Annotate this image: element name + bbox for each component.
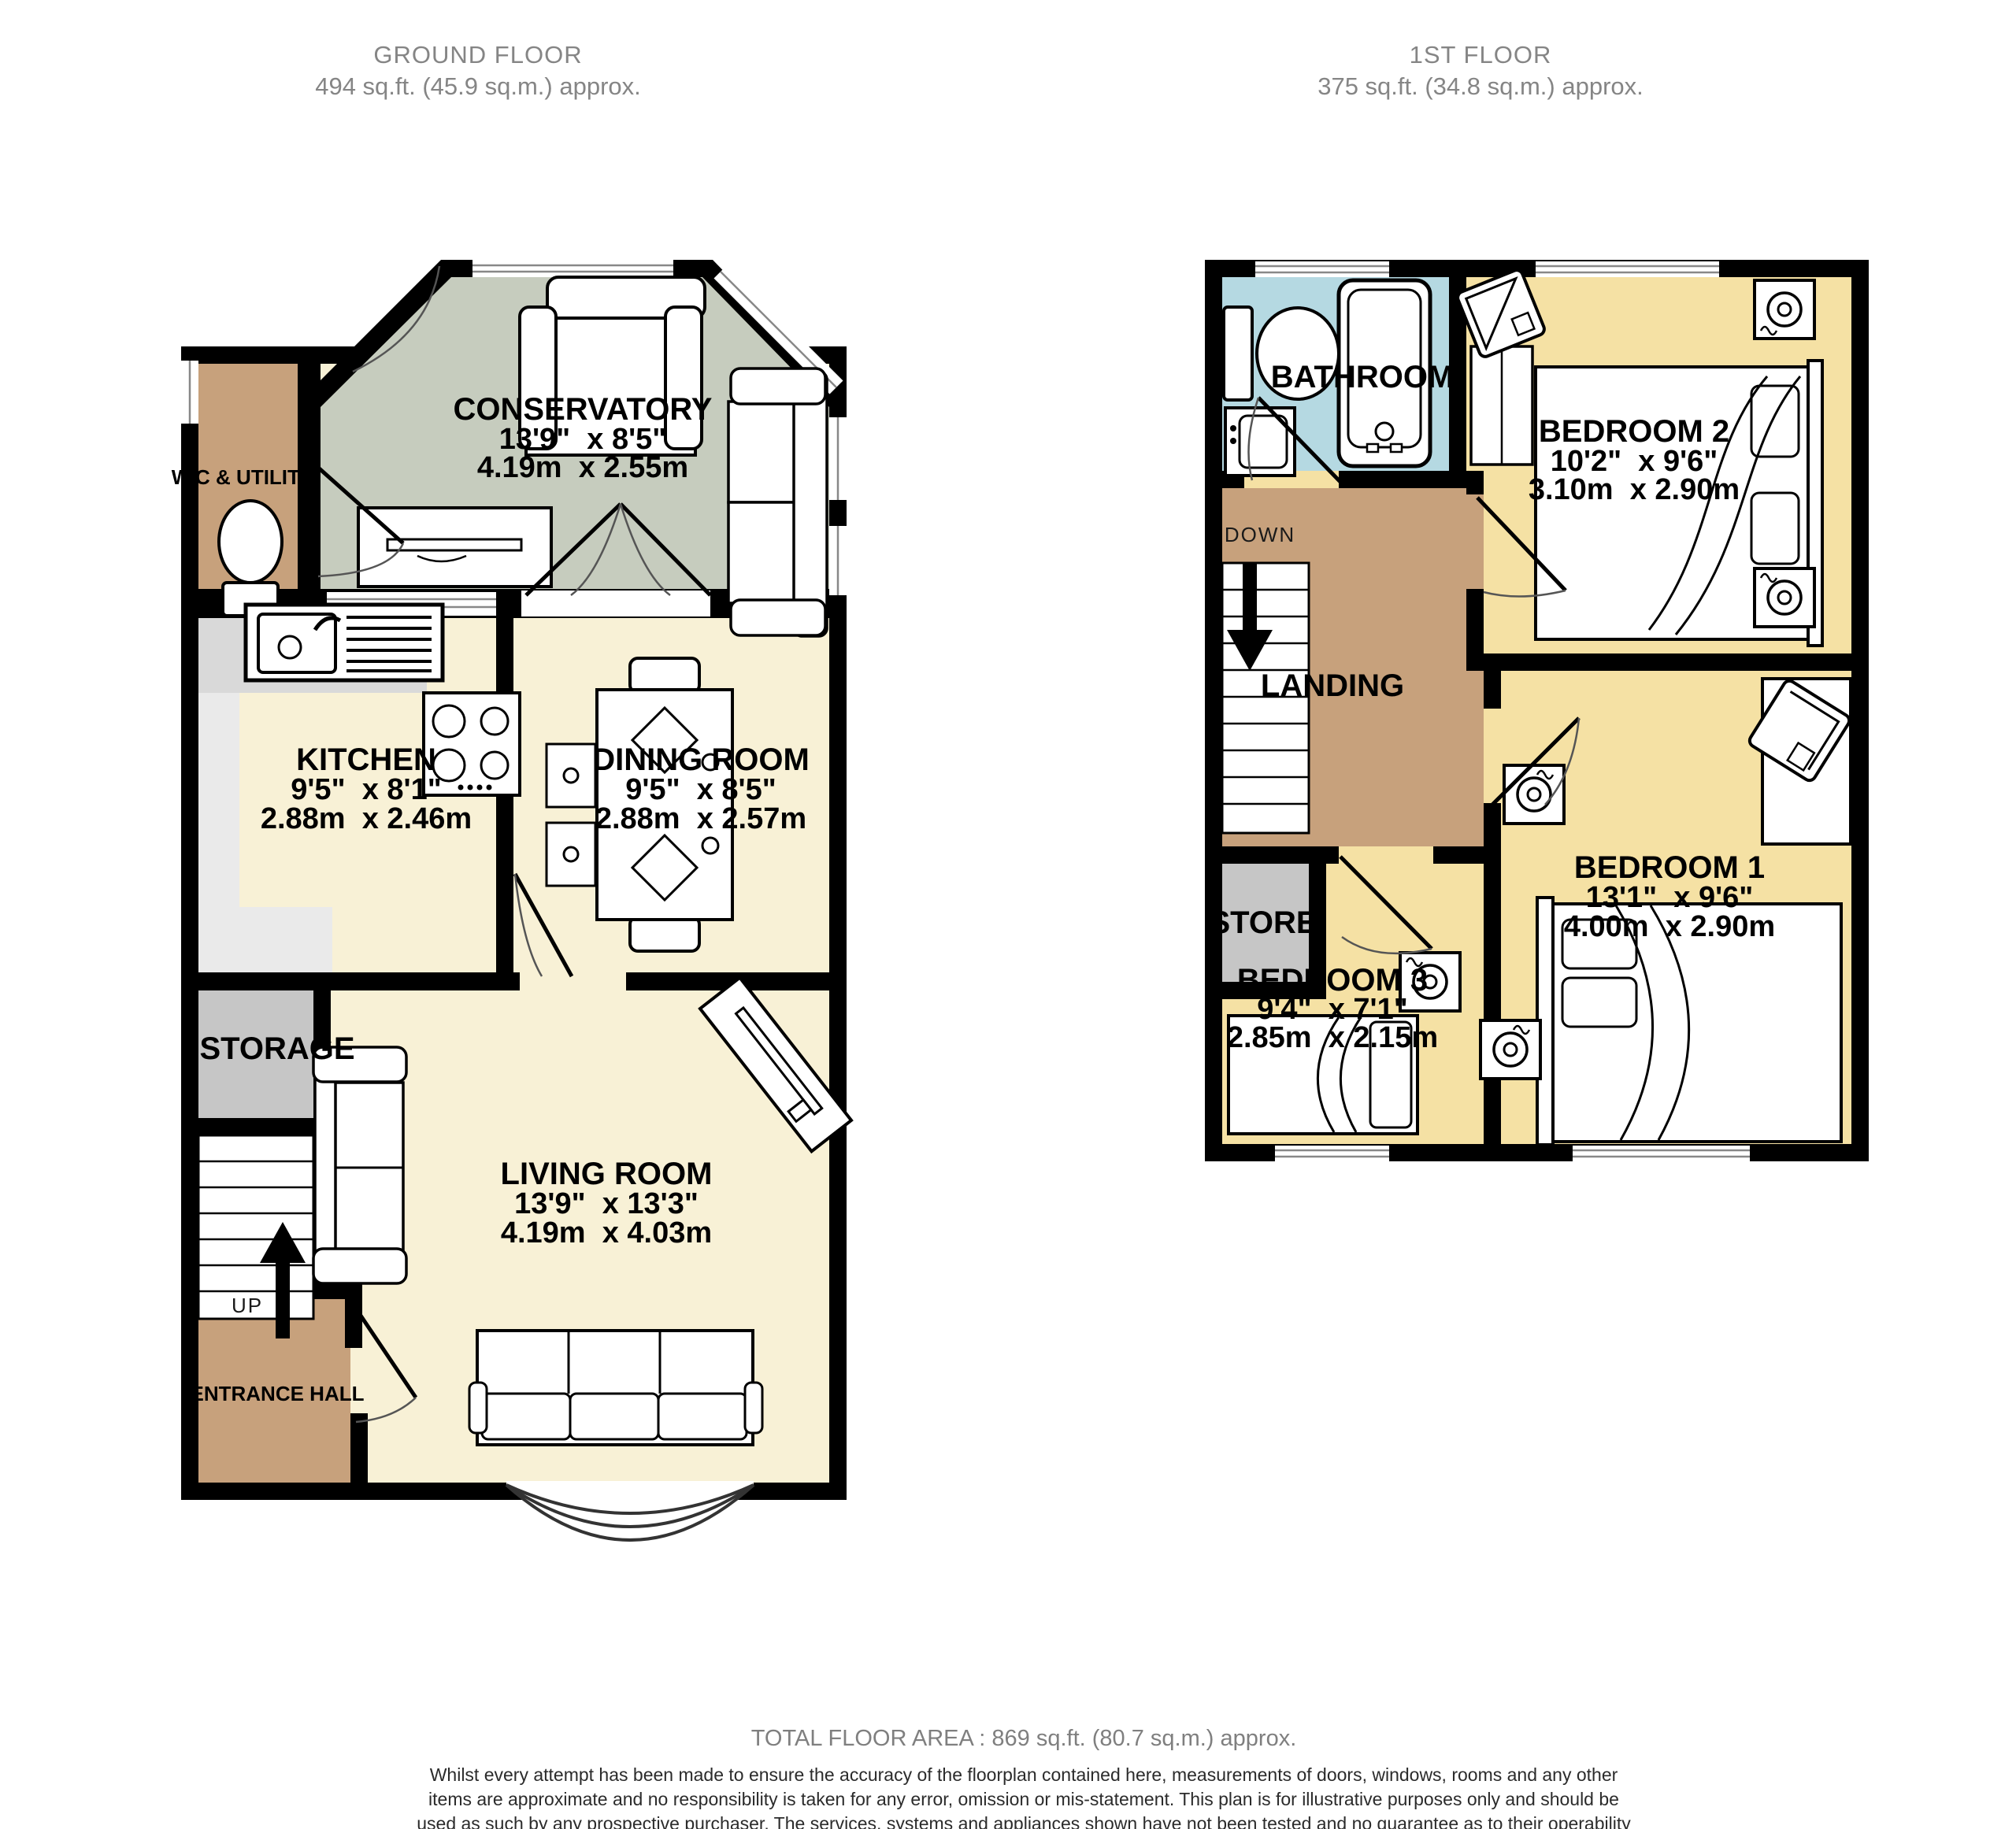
conservatory-top-window	[472, 260, 673, 277]
living-sofa-large-icon	[469, 1331, 762, 1445]
svg-text:4.19m x 4.03m: 4.19m x 4.03m	[501, 1216, 712, 1250]
svg-text:9'5" x 8'1": 9'5" x 8'1"	[291, 773, 441, 806]
svg-text:BEDROOM 2: BEDROOM 2	[1539, 414, 1729, 449]
bedroom2-window	[1536, 261, 1719, 277]
bedroom3-window	[1275, 1146, 1389, 1161]
room-label-bedroom1: BEDROOM 1 13'1" x 9'6" 4.00m x 2.90m	[1564, 850, 1775, 943]
svg-text:3.10m x 2.90m: 3.10m x 2.90m	[1529, 473, 1740, 506]
toilet-icon	[219, 501, 282, 616]
svg-text:13'1" x 9'6": 13'1" x 9'6"	[1586, 881, 1754, 914]
disclaimer-text: Whilst every attempt has been made to en…	[409, 1763, 1638, 1829]
svg-text:KITCHEN: KITCHEN	[296, 742, 436, 777]
stair-label-up: UP	[232, 1294, 263, 1317]
footer: TOTAL FLOOR AREA : 869 sq.ft. (80.7 sq.m…	[409, 1726, 1638, 1829]
total-floor-area: TOTAL FLOOR AREA : 869 sq.ft. (80.7 sq.m…	[409, 1726, 1638, 1752]
svg-text:BEDROOM 1: BEDROOM 1	[1574, 850, 1765, 885]
bay-window	[506, 1481, 754, 1540]
bathroom-window	[1255, 261, 1389, 277]
bedroom1-window	[1573, 1146, 1750, 1161]
conservatory-sofa-icon	[728, 368, 827, 636]
french-door-opening	[521, 591, 710, 616]
room-label-entrance-hall: ENTRANCE HALL	[191, 1382, 365, 1405]
bedroom1-desk-icon	[1747, 679, 1851, 844]
floorplan-drawing: CONSERVATORY 13'9" x 8'5" 4.19m x 2.55m …	[0, 0, 2016, 1829]
conservatory-table-icon	[358, 508, 551, 587]
basin-icon	[1225, 408, 1295, 476]
kitchen-sink-icon	[246, 605, 443, 680]
room-label-living-room: LIVING ROOM 13'9" x 13'3" 4.19m x 4.03m	[501, 1157, 713, 1250]
svg-text:4.19m x 2.55m: 4.19m x 2.55m	[477, 451, 688, 484]
room-label-bedroom3: BEDROOM 3 9'4" x 7'1" 2.85m x 2.15m	[1227, 963, 1438, 1054]
svg-text:2.88m x 2.57m: 2.88m x 2.57m	[595, 802, 806, 835]
speaker-icon-bedroom2-bottom	[1755, 568, 1814, 627]
svg-text:LIVING ROOM: LIVING ROOM	[501, 1157, 713, 1191]
living-sofa-small-icon	[313, 1047, 406, 1283]
room-label-store: STORE	[1209, 905, 1317, 940]
room-label-bathroom: BATHROOM	[1271, 360, 1455, 394]
stair-label-down: DOWN	[1225, 523, 1295, 546]
svg-text:2.85m x 2.15m: 2.85m x 2.15m	[1227, 1021, 1438, 1054]
floorplan-canvas: GROUND FLOOR 494 sq.ft. (45.9 sq.m.) app…	[0, 0, 2016, 1829]
kitchen-counter-bottom	[198, 907, 332, 972]
speaker-icon-bedroom1-top	[1504, 765, 1564, 824]
room-label-storage: STORAGE	[199, 1031, 354, 1066]
room-label-landing: LANDING	[1261, 668, 1404, 703]
speaker-icon-bedroom2-top	[1755, 280, 1814, 339]
wc-window	[181, 361, 198, 424]
svg-text:2.88m x 2.46m: 2.88m x 2.46m	[261, 802, 472, 835]
speaker-icon-bedroom1-bottom	[1480, 1020, 1540, 1079]
svg-text:4.00m x 2.90m: 4.00m x 2.90m	[1564, 910, 1775, 943]
svg-text:13'9" x 13'3": 13'9" x 13'3"	[514, 1187, 699, 1220]
room-label-wc-utility: W.C & UTILITY	[172, 465, 314, 489]
room-label-bedroom2: BEDROOM 2 10'2" x 9'6" 3.10m x 2.90m	[1529, 414, 1740, 506]
svg-text:CONSERVATORY: CONSERVATORY	[454, 392, 713, 427]
svg-text:9'5" x 8'5": 9'5" x 8'5"	[625, 773, 776, 806]
stairs-up	[198, 1135, 313, 1319]
svg-text:DINING ROOM: DINING ROOM	[592, 742, 810, 777]
kitchen-counter-left	[198, 693, 239, 907]
